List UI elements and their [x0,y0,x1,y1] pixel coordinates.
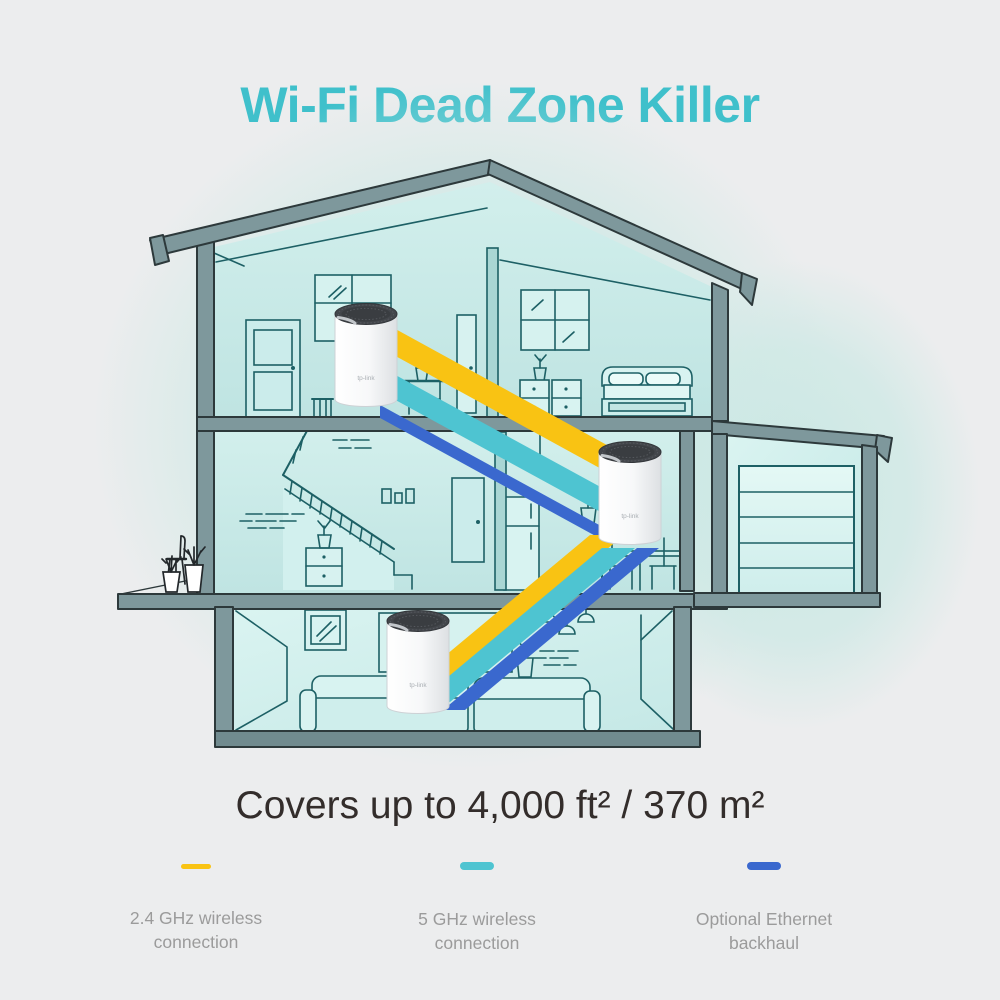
garage-left-wall [712,434,727,600]
deco-logo-attic: tp-link [357,375,375,382]
legend-item-2-4ghz: 2.4 GHz wireless connection [76,862,316,954]
legend-label-5ghz: 5 GHz wireless connection [357,907,597,955]
legend-item-ethernet: Optional Ethernet backhaul [644,862,884,955]
deco-logo-second-floor: tp-link [621,513,639,520]
deco-unit-basement [387,611,449,714]
coverage-text: Covers up to 4,000 ft² / 370 m² [0,784,1000,828]
legend-label-ethernet: Optional Ethernet backhaul [644,907,884,955]
legend-dash-ethernet [747,862,781,870]
garage-door [739,466,854,594]
garage-right-wall [862,445,877,600]
kitchen-right-wall [680,431,694,591]
legend-label-2-4ghz: 2.4 GHz wireless connection [76,906,316,954]
floor2-slab-porch [118,594,727,609]
basement-left-wall [215,607,233,733]
basement-right-wall [674,607,691,733]
bed [602,367,692,416]
bedroom-right-wall [712,283,728,421]
deco-unit-second-floor [599,442,661,545]
attic-door [246,320,300,417]
bedroom-window [521,290,589,350]
promo-page: Wi-Fi Dead Zone Killer [0,0,1000,1000]
legend-dash-5ghz [460,862,494,870]
basement-floor-slab [215,731,700,747]
house-cutaway-illustration: tp-link tp-link tp-link [0,0,1000,1000]
deco-logo-basement: tp-link [409,682,427,689]
fridge [502,497,539,590]
porch-plant-small [162,556,181,592]
wall-frame [305,610,346,650]
legend-item-5ghz: 5 GHz wireless connection [357,862,597,955]
deco-unit-attic [335,304,397,407]
legend-dash-2-4ghz [181,864,211,869]
second-floor-door [452,478,484,562]
garage-floor-slab [694,593,880,607]
